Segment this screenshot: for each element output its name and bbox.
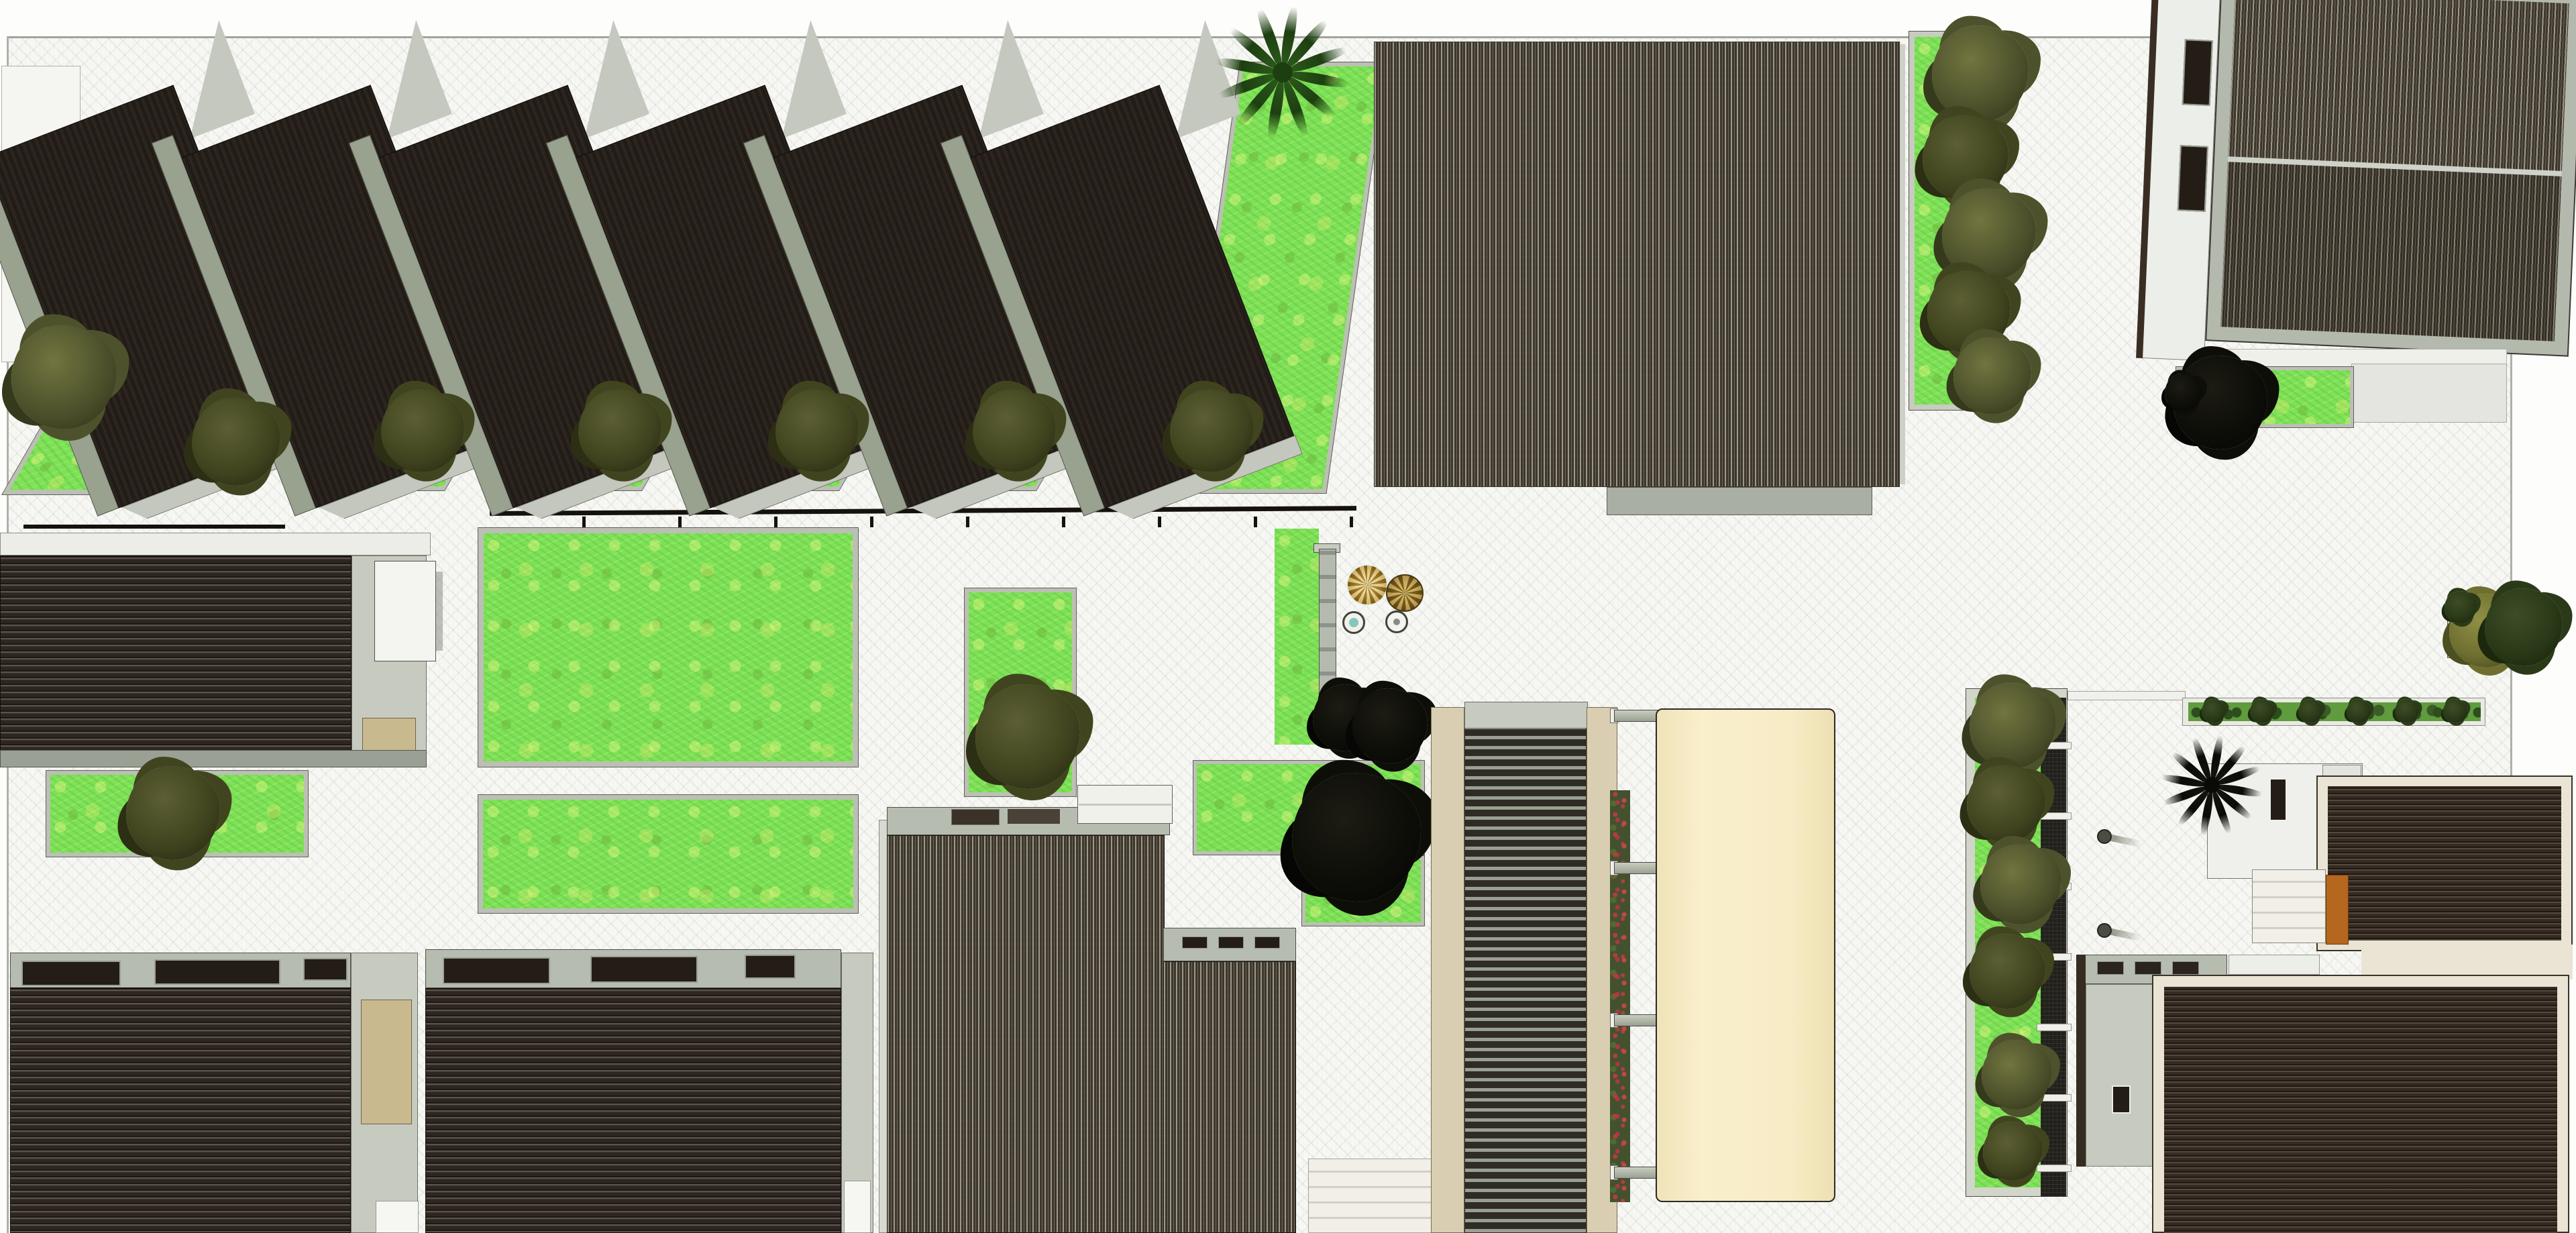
- garage-skylight: [2135, 961, 2161, 975]
- east-white-band: [2229, 955, 2320, 975]
- villa-window: [2178, 145, 2208, 212]
- west-building-fascia: [0, 750, 427, 767]
- awning-bracket-arm: [1614, 710, 1658, 722]
- awning-bracket-arm: [1614, 862, 1658, 874]
- trellis-beam: [2037, 1165, 2072, 1172]
- villa-gray-slab: [2351, 364, 2507, 423]
- east-stair-court: [2252, 869, 2326, 943]
- central-lawn-wide: [478, 794, 859, 914]
- pergola-rail-left: [1431, 707, 1464, 1233]
- sw-skylight: [154, 959, 280, 985]
- east-palm: [2163, 737, 2260, 833]
- southwest-house-b: [425, 949, 875, 1233]
- south-hall: [879, 785, 1308, 1233]
- sw-roof: [10, 987, 351, 1233]
- main-hall-fascia: [1607, 487, 1872, 515]
- south-hall-roof-hatch: [1008, 809, 1060, 824]
- west-building-box-shadow: [436, 572, 443, 651]
- vent-slot: [1218, 936, 1244, 949]
- corner-planter-tree: [2485, 588, 2563, 666]
- west-building-whitebox: [374, 561, 436, 661]
- south-hall-roof-left: [887, 835, 1165, 1233]
- fence-post-tick: [1254, 517, 1257, 527]
- central-lawn-large: [478, 527, 859, 767]
- hedge-green: [2188, 702, 2481, 721]
- site-canvas[interactable]: [0, 0, 2576, 1233]
- villa-roof-upper: [2228, 0, 2569, 171]
- east-roof-upper: [2328, 786, 2561, 941]
- pergola-cap: [1464, 702, 1588, 729]
- bollard: [2097, 829, 2112, 844]
- south-hall-slab-line: [1079, 804, 1171, 806]
- main-hall-edge: [1900, 44, 1905, 484]
- lawn-grass: [1275, 529, 1319, 745]
- garage-skylight: [2172, 961, 2199, 975]
- mosaic-table-large: [1346, 564, 1388, 606]
- canopy-bar: [2068, 691, 2186, 700]
- sw-skylight: [21, 961, 121, 986]
- vent-slot: [1254, 936, 1280, 949]
- sw-skylight: [590, 956, 698, 983]
- west-building: [0, 533, 444, 769]
- sw-white-door: [376, 1201, 419, 1233]
- villa-roof-lower: [2220, 162, 2561, 341]
- west-building-topwall: [0, 533, 431, 555]
- main-hall-roof: [1374, 42, 1900, 487]
- mosaic-table-small: [1386, 574, 1424, 612]
- south-hall-roof-right: [1163, 961, 1296, 1233]
- east-west-wall: [2086, 984, 2154, 1167]
- awning-bracket-arm: [1614, 1014, 1658, 1026]
- south-hall-roof-hatch: [951, 809, 1000, 825]
- palm-tree: [1219, 9, 1346, 136]
- garden-wall-lawn: [1275, 529, 1319, 745]
- platform-edge-top: [7, 36, 2210, 38]
- east-dark-wall: [2076, 955, 2086, 1167]
- garden-stool-center: [1349, 618, 1358, 627]
- east-roof-lower: [2164, 987, 2557, 1233]
- sw-skylight: [745, 955, 796, 979]
- awning-bracket-arm: [1614, 1167, 1658, 1179]
- sw-white-door: [844, 1181, 871, 1233]
- west-building-roof: [0, 555, 352, 754]
- palm-crown: [2204, 777, 2219, 792]
- lawn-grass: [483, 800, 853, 908]
- pergola-slats: [1464, 707, 1587, 1233]
- sw-roof: [425, 988, 841, 1233]
- shade-awning: [1656, 708, 1835, 1202]
- bougainvillea-strip: [1610, 790, 1630, 1202]
- vent-slot: [1182, 936, 1207, 949]
- fence-post-tick: [1350, 517, 1353, 527]
- east-villa-window: [2271, 780, 2286, 820]
- trellis-beam: [2037, 1024, 2072, 1031]
- sw-tan-panel: [361, 1000, 412, 1124]
- garage-skylight: [2097, 961, 2124, 975]
- long-hedge: [2182, 698, 2485, 726]
- villa-window: [2182, 39, 2213, 106]
- east-terracotta-wall: [2326, 875, 2349, 945]
- sw-skylight: [443, 957, 550, 984]
- east-wall-window: [2112, 1085, 2131, 1114]
- lawn-grass: [484, 533, 853, 761]
- garden-stool-center: [1393, 619, 1400, 625]
- sw-skylight: [303, 958, 347, 981]
- bollard: [2097, 923, 2112, 938]
- outdoor-steps: [1308, 1159, 1432, 1233]
- planter-trellis: [2041, 698, 2066, 1197]
- southwest-house-a: [10, 945, 439, 1233]
